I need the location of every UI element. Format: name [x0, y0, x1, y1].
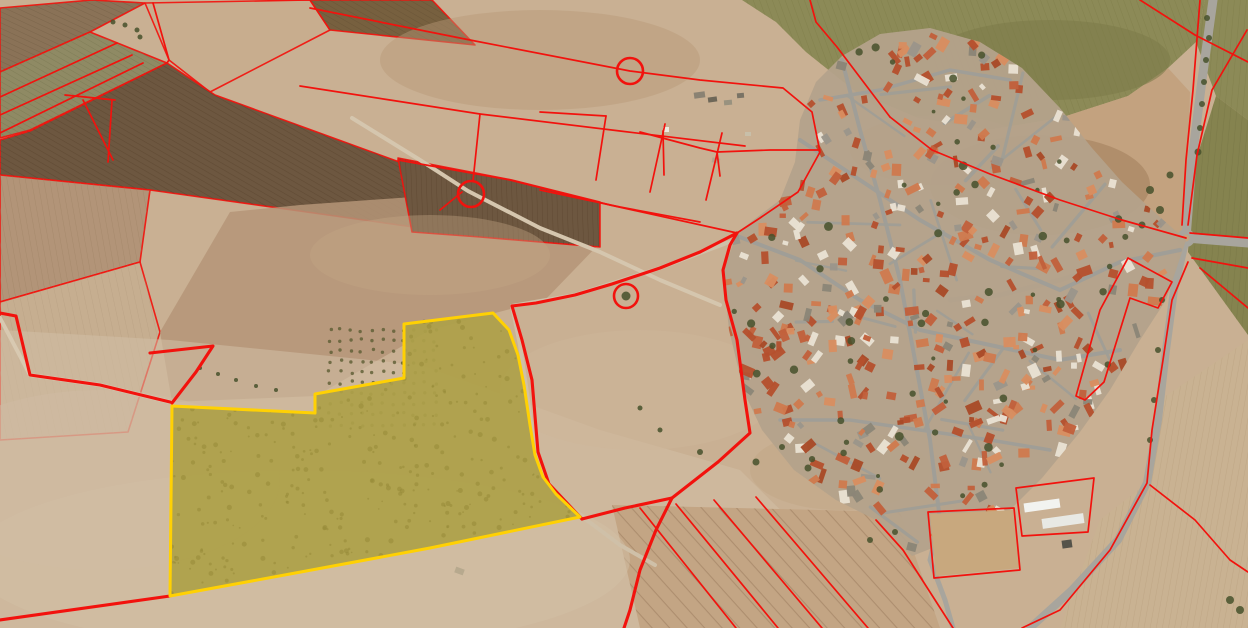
orchard-tree — [349, 338, 352, 341]
building — [935, 334, 943, 343]
tree — [274, 388, 278, 392]
building — [842, 215, 850, 225]
building — [902, 269, 910, 282]
town-tree — [753, 370, 761, 378]
tree — [135, 28, 140, 33]
outbuilding-6 — [745, 132, 751, 136]
building — [838, 257, 847, 265]
orchard-tree — [328, 382, 331, 385]
town-tree — [1122, 234, 1128, 240]
map-viewport[interactable] — [0, 0, 1248, 628]
building — [1018, 333, 1028, 342]
orchard-tree — [349, 360, 352, 363]
building — [828, 340, 837, 353]
town-tree — [981, 319, 988, 326]
tree — [216, 372, 220, 376]
town-tree — [1039, 232, 1047, 240]
building — [944, 375, 952, 383]
building — [1013, 345, 1019, 349]
building — [961, 299, 971, 308]
building — [838, 480, 847, 489]
building — [874, 305, 882, 313]
orchard-tree — [329, 351, 332, 354]
building — [1009, 81, 1018, 89]
building — [882, 348, 894, 359]
orchard-tree — [328, 340, 331, 343]
building — [878, 245, 884, 253]
tree — [753, 459, 760, 466]
tree — [658, 428, 663, 433]
town-tree — [816, 265, 823, 272]
orchard-tree — [340, 358, 343, 361]
building — [1071, 362, 1077, 368]
tree — [1146, 186, 1154, 194]
town-tree — [847, 337, 855, 345]
town-tree — [944, 399, 948, 403]
orchard-tree — [381, 351, 384, 354]
tree — [1204, 15, 1210, 21]
town-tree — [949, 74, 957, 82]
tree — [138, 35, 143, 40]
building — [968, 486, 975, 491]
town-tree — [1033, 348, 1038, 353]
building — [822, 284, 832, 292]
orchard-tree — [393, 361, 396, 364]
town-tree — [910, 390, 916, 396]
orchard-tree — [370, 371, 373, 374]
tree — [1203, 57, 1209, 63]
tree — [867, 537, 873, 543]
town-tree — [918, 319, 926, 327]
building — [916, 399, 926, 408]
building — [1008, 64, 1018, 74]
building — [1029, 251, 1038, 260]
building — [824, 397, 836, 406]
outbuilding-3 — [737, 93, 744, 99]
town-tree — [932, 110, 936, 114]
town-tree — [999, 462, 1004, 467]
orchard-tree — [348, 328, 351, 331]
tree — [1156, 206, 1164, 214]
building — [956, 197, 969, 205]
town-tree — [1099, 288, 1106, 295]
town-tree — [895, 432, 904, 441]
town-tree — [1056, 300, 1064, 308]
building — [970, 104, 977, 113]
orchard-tree — [382, 359, 385, 362]
sport-field — [930, 510, 1019, 576]
town-tree — [985, 288, 993, 296]
town-tree — [1064, 237, 1070, 243]
orchard-tree — [351, 372, 354, 375]
tree — [1201, 79, 1207, 85]
town-tree — [971, 181, 978, 188]
parcel-boundary-farm-divider-v1[interactable] — [663, 131, 664, 175]
orchard-tree — [350, 349, 353, 352]
orchard-tree — [382, 338, 385, 341]
tree — [638, 406, 643, 411]
building — [947, 360, 954, 371]
town-tree — [769, 343, 775, 349]
building — [980, 63, 989, 71]
building — [784, 283, 793, 292]
orchard-tree — [338, 382, 341, 385]
tree — [1155, 347, 1161, 353]
orchard-tree — [392, 330, 395, 333]
tree — [892, 529, 898, 535]
orchard-tree — [392, 338, 395, 341]
orchard-tree — [351, 379, 354, 382]
town-tree — [876, 474, 880, 478]
town-tree — [982, 482, 988, 488]
building — [940, 270, 950, 277]
town-tree — [872, 43, 880, 51]
orchard-tree — [361, 360, 364, 363]
building — [911, 268, 918, 275]
town-tree — [1107, 264, 1112, 269]
town-tree — [768, 234, 775, 241]
town-tree — [931, 356, 935, 360]
town-tree — [999, 395, 1007, 403]
tree — [1236, 606, 1244, 614]
tree — [254, 384, 258, 388]
orchard-tree — [330, 328, 333, 331]
town-tree — [1031, 292, 1035, 296]
building — [954, 224, 962, 231]
outbuilding-2 — [724, 100, 732, 106]
orchard-tree — [370, 360, 373, 363]
tree — [1226, 596, 1234, 604]
town-tree — [932, 429, 938, 435]
town-tree — [902, 183, 907, 188]
orchard-tree — [358, 350, 361, 353]
building — [761, 251, 769, 264]
orchard-tree — [338, 327, 341, 330]
town-tree — [747, 319, 755, 327]
town-tree — [990, 145, 995, 150]
town-tree — [876, 486, 883, 493]
orchard-tree — [371, 329, 374, 332]
building — [923, 278, 930, 283]
orchard-tree — [382, 328, 385, 331]
orchard-tree — [327, 369, 330, 372]
building — [892, 164, 902, 176]
town-tree — [732, 309, 737, 314]
orchard-tree — [382, 369, 385, 372]
town-tree — [837, 417, 844, 424]
town-tree — [954, 139, 960, 145]
town-tree — [922, 310, 929, 317]
tree — [1206, 35, 1212, 41]
tree — [622, 292, 631, 301]
tree — [697, 449, 703, 455]
orchard-tree — [370, 339, 373, 342]
town-tree — [883, 296, 889, 302]
town-tree — [1057, 159, 1062, 164]
satellite-map[interactable] — [0, 0, 1248, 628]
town-tree — [840, 450, 847, 457]
town-tree — [844, 440, 849, 445]
tree — [779, 444, 785, 450]
road-main-road-east — [1186, 238, 1248, 243]
orchard-tree — [392, 349, 395, 352]
terrain-blotch-0 — [380, 10, 700, 110]
town-tree — [809, 456, 815, 462]
town-tree — [961, 96, 966, 101]
building — [961, 364, 971, 377]
building — [931, 484, 940, 489]
tree — [1167, 172, 1174, 179]
town-tree — [890, 59, 895, 64]
building — [780, 213, 786, 217]
town-tree — [846, 318, 854, 326]
building — [830, 263, 838, 270]
town-tree — [824, 222, 833, 231]
orchard-tree — [339, 369, 342, 372]
tree — [1199, 101, 1205, 107]
tree — [234, 378, 238, 382]
town-tree — [934, 229, 942, 237]
tree — [123, 23, 128, 28]
building — [908, 320, 914, 326]
orchard-tree — [360, 337, 363, 340]
tree — [111, 20, 116, 25]
building — [890, 336, 899, 343]
building — [1018, 448, 1029, 457]
town-tree — [848, 358, 854, 364]
building — [811, 301, 821, 306]
town-tree — [978, 52, 985, 59]
orchard-tree — [358, 330, 361, 333]
town-tree — [960, 493, 965, 498]
orchard-tree — [328, 361, 331, 364]
orchard-tree — [338, 348, 341, 351]
building — [954, 114, 968, 125]
building — [914, 364, 925, 370]
town-tree — [984, 443, 993, 452]
building — [1056, 351, 1062, 362]
building — [1046, 420, 1052, 431]
terrain-blotch-1 — [310, 215, 550, 295]
outbuilding-9 — [1061, 539, 1072, 548]
town-tree — [953, 189, 960, 196]
building — [897, 420, 904, 425]
orchard-tree — [360, 370, 363, 373]
building — [899, 42, 907, 49]
orchard-tree — [361, 380, 364, 383]
building — [873, 259, 884, 270]
building — [1026, 296, 1033, 305]
building — [1128, 283, 1139, 297]
town-tree — [855, 48, 862, 55]
town-tree — [790, 366, 798, 374]
orchard-tree — [372, 348, 375, 351]
orchard-tree — [392, 371, 395, 374]
town-tree — [936, 202, 940, 206]
tree — [805, 465, 812, 472]
orchard-tree — [338, 340, 341, 343]
building — [979, 380, 984, 391]
